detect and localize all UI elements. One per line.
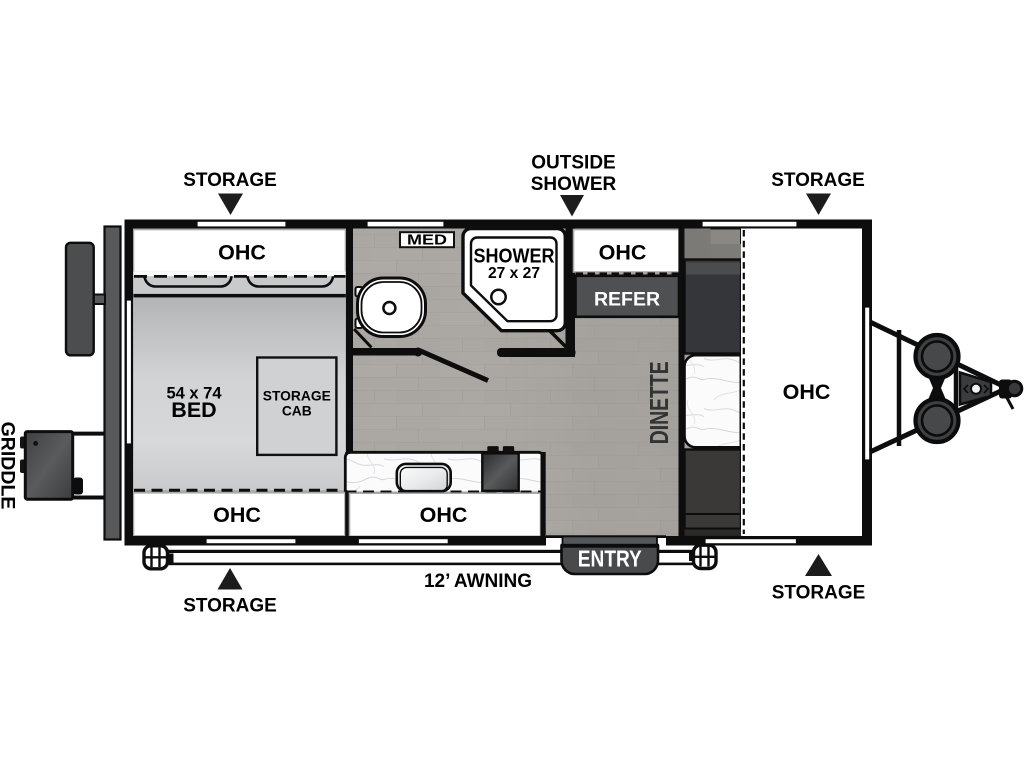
svg-text:12’ AWNING: 12’ AWNING — [424, 571, 532, 592]
svg-text:REFER: REFER — [594, 289, 660, 311]
svg-text:ENTRY: ENTRY — [578, 546, 642, 572]
svg-text:STORAGE: STORAGE — [771, 170, 865, 191]
svg-text:OHC: OHC — [420, 503, 468, 527]
svg-text:STORAGE: STORAGE — [772, 583, 866, 604]
svg-text:MED: MED — [407, 232, 447, 249]
svg-text:27 x 27: 27 x 27 — [488, 265, 540, 282]
svg-text:STORAGE: STORAGE — [263, 389, 331, 404]
svg-text:OHC: OHC — [783, 380, 831, 404]
svg-text:CAB: CAB — [282, 404, 312, 419]
svg-text:SHOWER: SHOWER — [531, 174, 617, 195]
svg-text:OHC: OHC — [218, 241, 266, 265]
svg-text:BED: BED — [171, 398, 216, 422]
svg-text:OUTSIDE: OUTSIDE — [531, 153, 615, 174]
svg-text:GRIDDLE: GRIDDLE — [0, 422, 19, 510]
svg-text:STORAGE: STORAGE — [183, 596, 277, 617]
svg-text:OHC: OHC — [599, 241, 647, 265]
svg-text:DINETTE: DINETTE — [644, 361, 674, 444]
svg-text:STORAGE: STORAGE — [183, 170, 277, 191]
svg-text:OHC: OHC — [213, 503, 261, 527]
